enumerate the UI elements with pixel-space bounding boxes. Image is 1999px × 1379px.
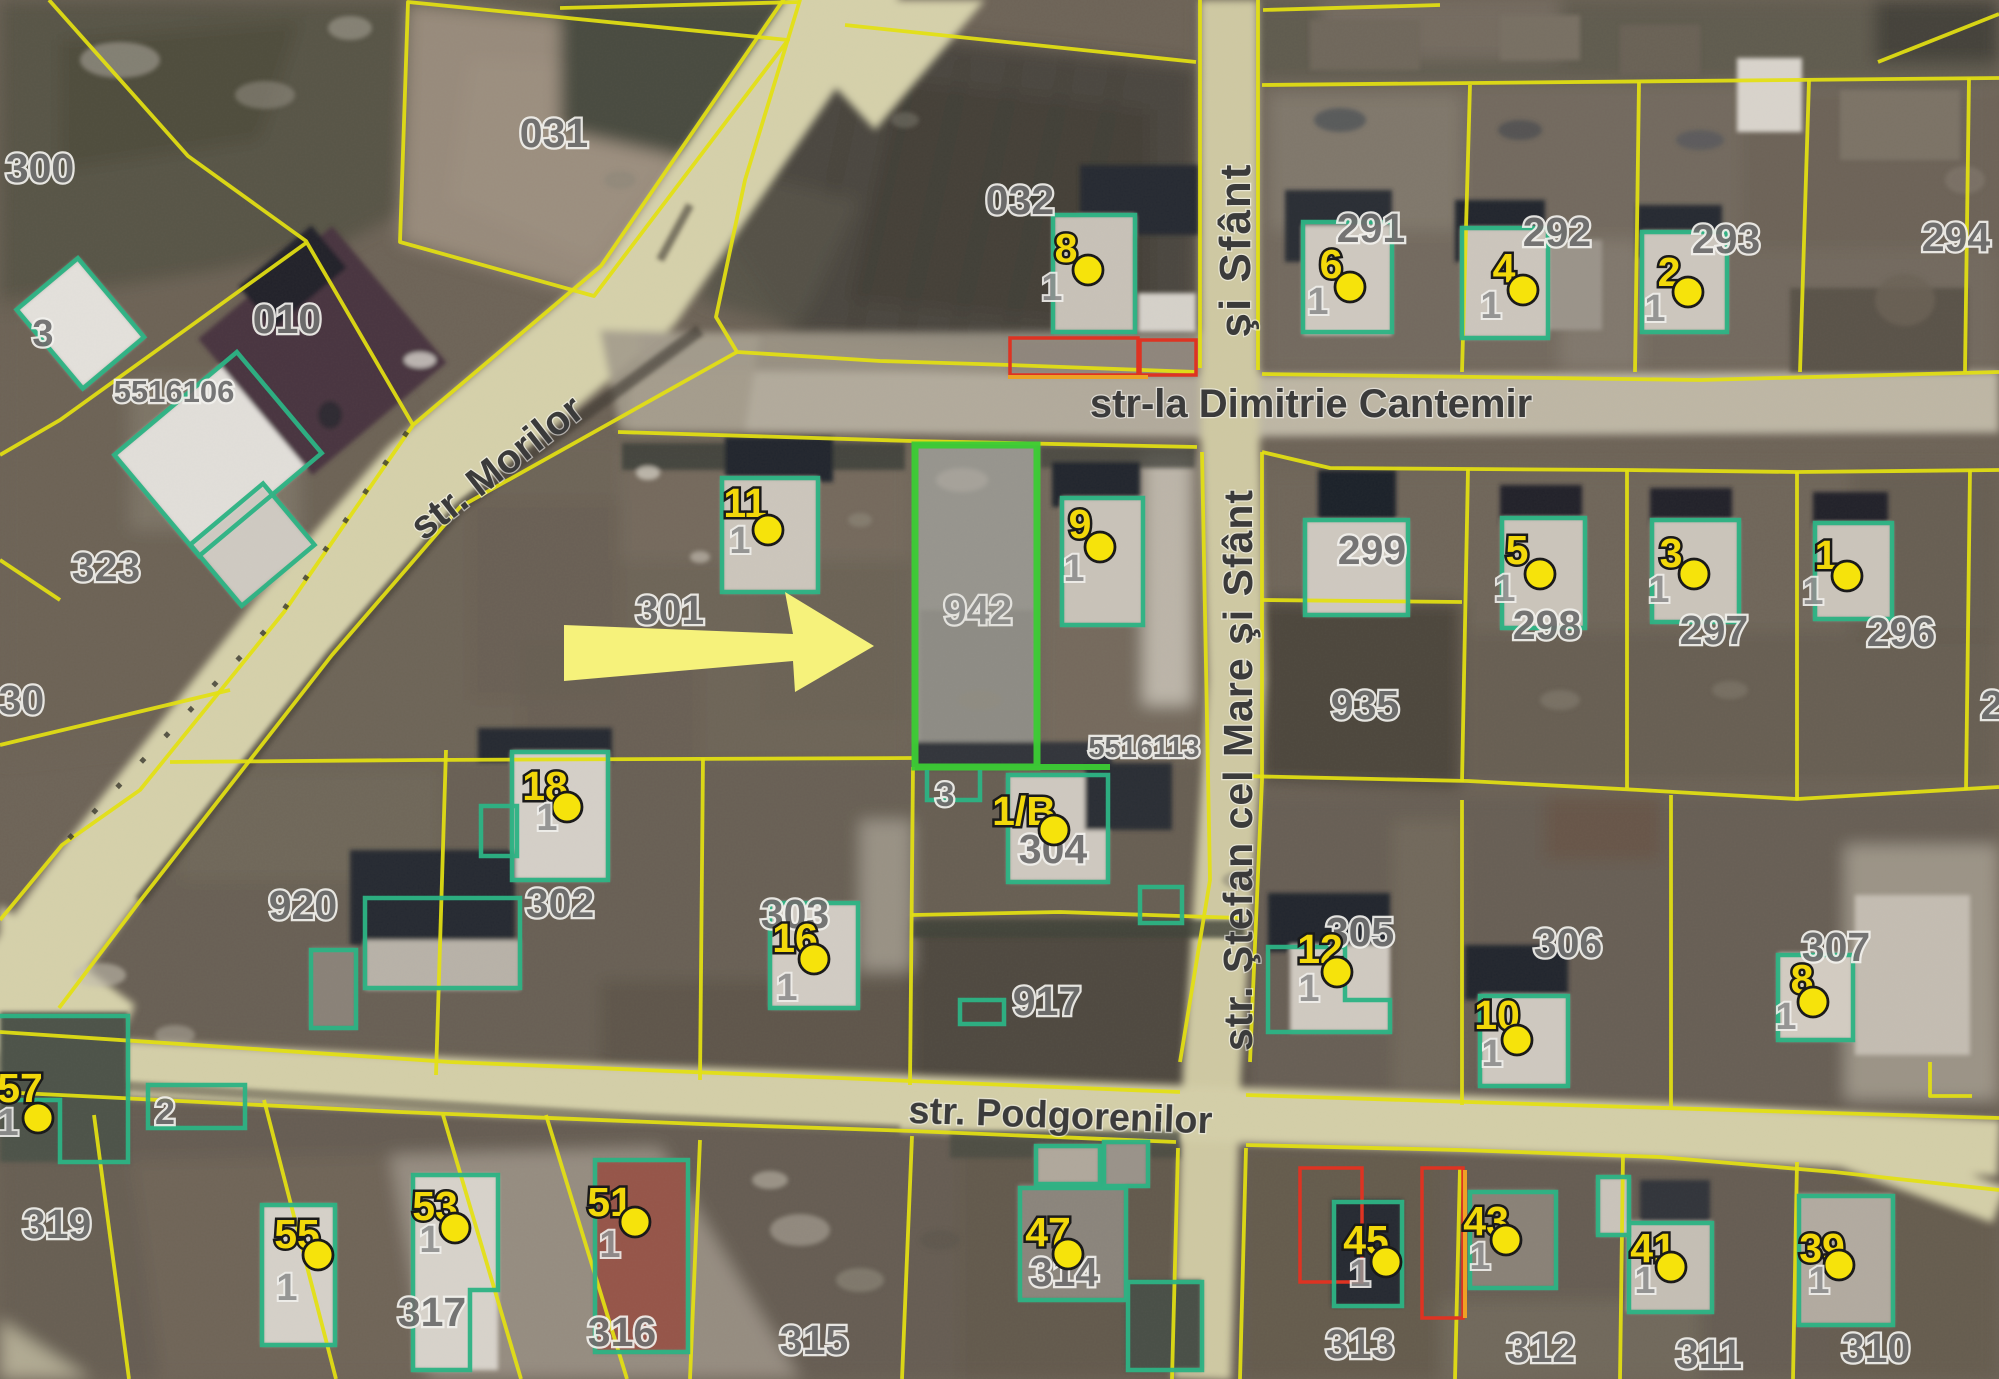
svg-text:300: 300 [6, 145, 74, 191]
svg-text:310: 310 [1842, 1325, 1910, 1371]
svg-text:313: 313 [1326, 1321, 1394, 1367]
svg-text:1: 1 [1775, 996, 1796, 1038]
svg-text:1: 1 [276, 1267, 297, 1309]
svg-text:1: 1 [1481, 1033, 1502, 1075]
svg-text:1: 1 [0, 1102, 19, 1144]
svg-text:306: 306 [1534, 920, 1602, 966]
svg-text:935: 935 [1331, 682, 1399, 728]
svg-text:1: 1 [1648, 569, 1669, 611]
svg-text:010: 010 [253, 296, 321, 342]
svg-text:942: 942 [944, 587, 1012, 633]
svg-text:5516113: 5516113 [1088, 732, 1199, 764]
svg-text:1: 1 [1063, 548, 1084, 590]
svg-text:1: 1 [1307, 281, 1328, 323]
svg-text:1: 1 [419, 1219, 440, 1261]
svg-text:1: 1 [1480, 285, 1501, 327]
svg-text:296: 296 [1867, 609, 1935, 655]
svg-text:920: 920 [269, 882, 337, 928]
svg-text:3: 3 [936, 776, 955, 814]
svg-text:317: 317 [398, 1289, 466, 1335]
svg-text:şi Sfânt: şi Sfânt [1211, 163, 1260, 338]
svg-text:302: 302 [526, 880, 594, 926]
svg-text:1: 1 [1469, 1236, 1490, 1278]
svg-text:330: 330 [0, 677, 44, 723]
svg-text:3: 3 [32, 313, 53, 355]
svg-text:2: 2 [1981, 682, 1999, 728]
svg-text:312: 312 [1507, 1325, 1575, 1371]
svg-text:5: 5 [1506, 527, 1529, 573]
svg-text:311: 311 [1676, 1331, 1742, 1377]
svg-text:str. Ştefan cel Mare şi Sfânt: str. Ştefan cel Mare şi Sfânt [1215, 489, 1261, 1051]
svg-text:294: 294 [1922, 214, 1991, 260]
svg-text:1: 1 [1808, 1260, 1829, 1302]
svg-text:1: 1 [776, 967, 797, 1009]
svg-text:323: 323 [72, 544, 140, 590]
svg-text:299: 299 [1338, 527, 1406, 573]
svg-text:319: 319 [23, 1201, 91, 1247]
svg-text:1: 1 [729, 520, 750, 562]
svg-text:291: 291 [1337, 205, 1405, 251]
svg-text:297: 297 [1680, 607, 1748, 653]
svg-text:1: 1 [1041, 267, 1062, 309]
svg-text:293: 293 [1692, 216, 1760, 262]
svg-text:1: 1 [1494, 568, 1515, 610]
svg-text:292: 292 [1523, 209, 1591, 255]
svg-text:298: 298 [1513, 602, 1581, 648]
svg-text:316: 316 [588, 1309, 656, 1355]
svg-text:2: 2 [155, 1091, 175, 1132]
svg-text:str-la Dimitrie Cantemir: str-la Dimitrie Cantemir [1090, 382, 1532, 426]
svg-text:1: 1 [1634, 1260, 1655, 1302]
svg-text:315: 315 [780, 1317, 848, 1363]
svg-text:5516106: 5516106 [114, 374, 235, 409]
svg-text:1: 1 [536, 797, 557, 839]
svg-text:1: 1 [1349, 1253, 1370, 1295]
svg-text:1: 1 [1802, 571, 1823, 613]
svg-text:1: 1 [1298, 968, 1319, 1010]
svg-text:032: 032 [986, 177, 1054, 223]
svg-text:917: 917 [1013, 978, 1081, 1024]
svg-text:1: 1 [599, 1224, 620, 1266]
svg-text:031: 031 [520, 110, 588, 156]
svg-text:301: 301 [636, 587, 704, 633]
svg-text:1: 1 [1644, 288, 1665, 330]
